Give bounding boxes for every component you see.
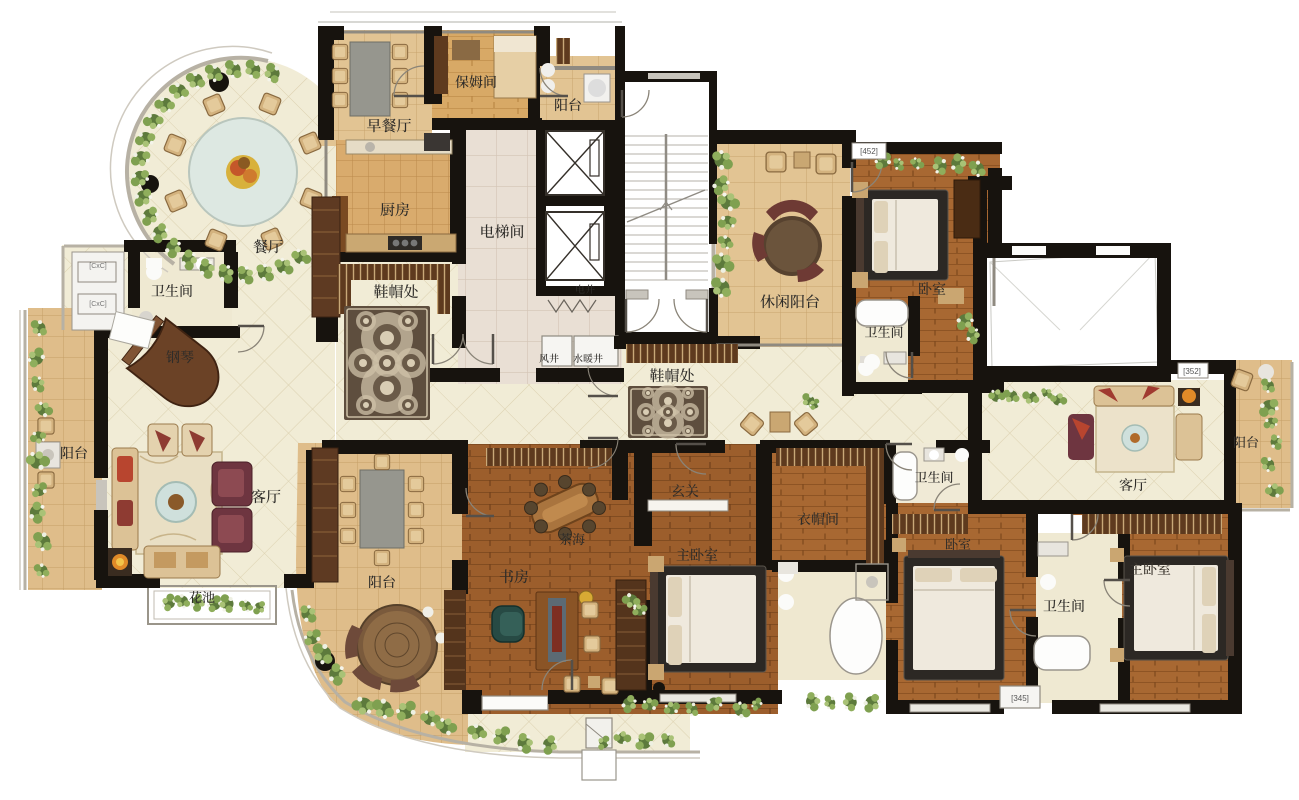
svg-text:[345]: [345] bbox=[1011, 694, 1029, 703]
svg-text:[CxC]: [CxC] bbox=[89, 263, 107, 270]
svg-text:[CxC]: [CxC] bbox=[89, 301, 107, 308]
svg-text:[352]: [352] bbox=[1183, 367, 1201, 376]
svg-text:[452]: [452] bbox=[860, 147, 878, 156]
